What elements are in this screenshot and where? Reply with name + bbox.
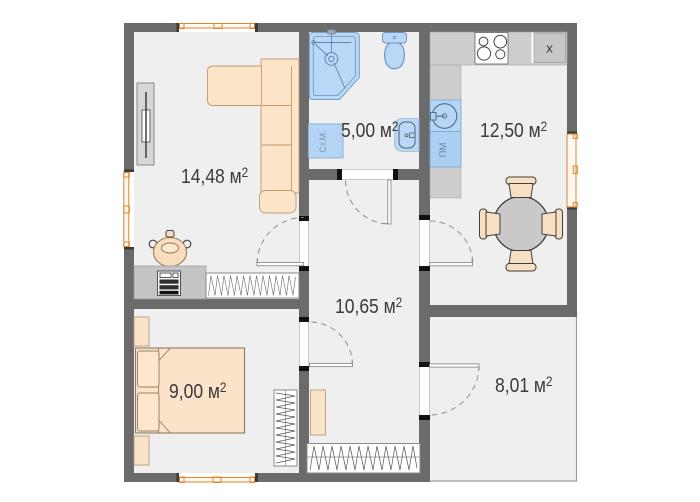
- svg-text:5,00 м2: 5,00 м2: [341, 119, 399, 141]
- svg-text:12,50 м2: 12,50 м2: [480, 119, 547, 141]
- svg-text:10,65 м2: 10,65 м2: [335, 295, 402, 317]
- svg-text:9,00 м2: 9,00 м2: [169, 380, 227, 402]
- svg-text:8,01 м2: 8,01 м2: [495, 374, 553, 396]
- svg-text:ПМ: ПМ: [438, 143, 449, 158]
- svg-text:x: x: [546, 41, 553, 56]
- svg-text:Ст.М.: Ст.М.: [318, 130, 328, 152]
- svg-text:14,48 м2: 14,48 м2: [181, 165, 248, 187]
